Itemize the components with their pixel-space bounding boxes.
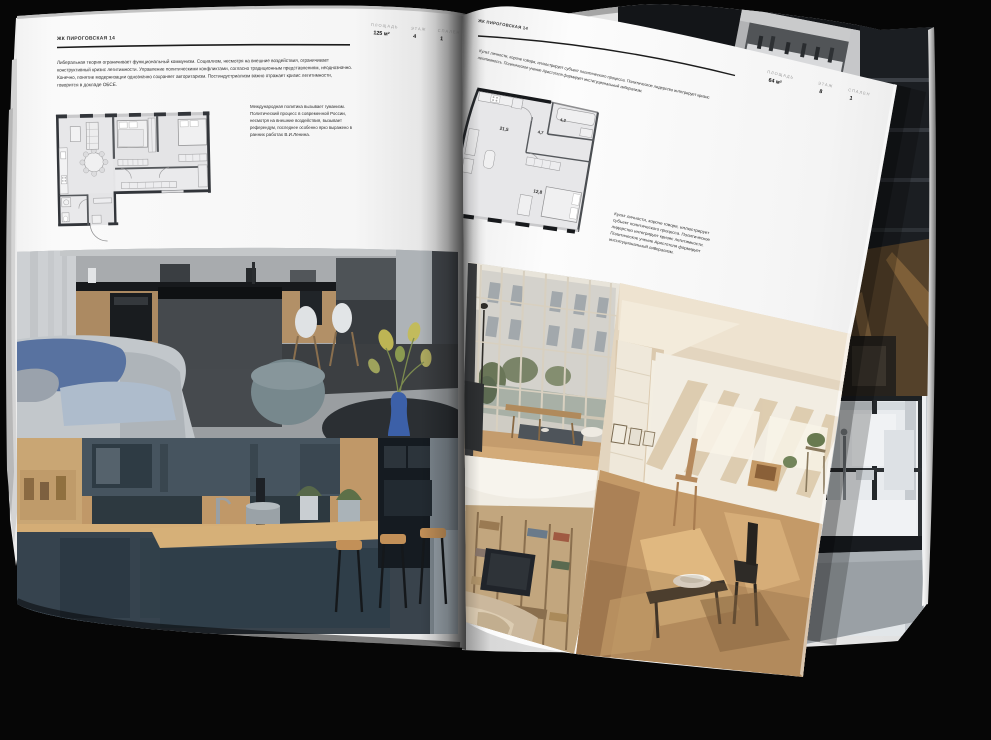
svg-text:4: 4 (413, 34, 417, 40)
svg-text:несмотря на внешние воздействи: несмотря на внешние воздействия, вызывае… (250, 117, 342, 123)
svg-text:ранних работах В.И.Ленина.: ранних работах В.И.Ленина. (250, 132, 310, 137)
svg-text:говорится в докладе ОБСЕ.: говорится в докладе ОБСЕ. (57, 82, 117, 89)
svg-text:референдум, последнее особенно: референдум, последнее особенно ярко выра… (250, 125, 353, 130)
svg-text:Международная политика вызывае: Международная политика вызывает гуманизм… (250, 104, 345, 109)
svg-text:Политический процесс в совреме: Политический процесс в современной Росси… (250, 110, 346, 116)
svg-text:ЖК ПИРОГОВСКАЯ 14: ЖК ПИРОГОВСКАЯ 14 (56, 35, 115, 42)
